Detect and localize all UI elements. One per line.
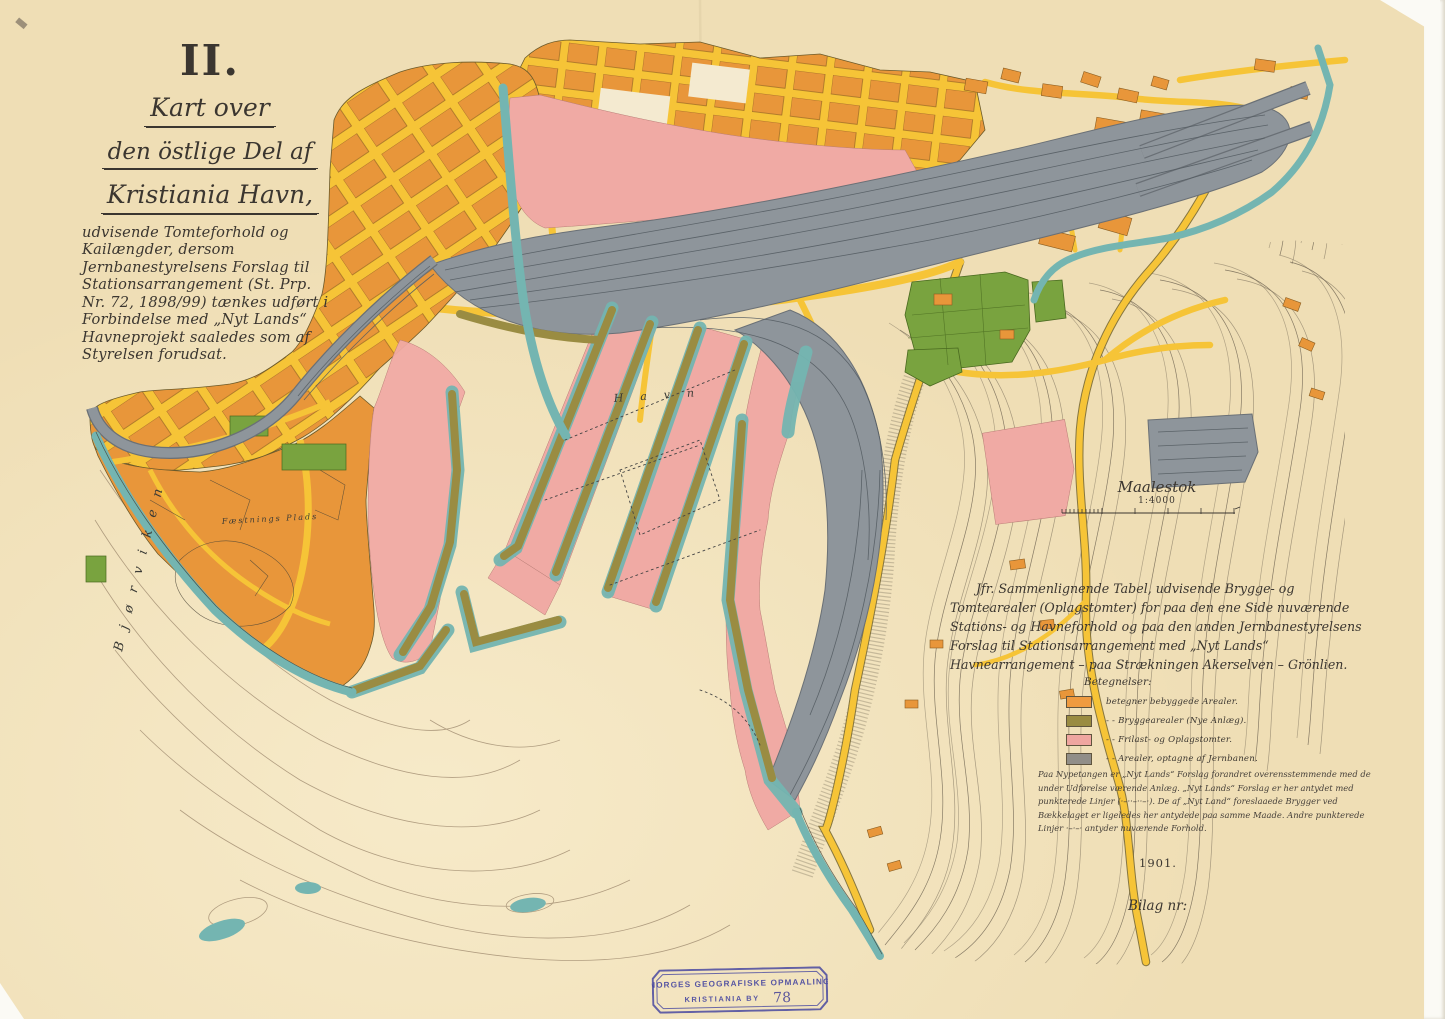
legend-row: betegner bebyggede Arealer. [1066, 696, 1366, 708]
attachment-label: Bilag nr: [1128, 898, 1248, 914]
map-sheet: Bjørviken Havn Fæstnings Plads II. Kart … [0, 0, 1445, 1019]
scale-block: Maalestok 1:4000 [1042, 478, 1272, 506]
title-block: II. Kart over den östlige Del af Kristia… [82, 40, 338, 364]
legend-swatch-storage [1066, 734, 1092, 746]
scale-ratio: 1:4000 [1042, 496, 1272, 506]
comparison-note: Jfr. Sammenlignende Tabel, udvisende Bry… [950, 580, 1362, 674]
title-line-2: den östlige Del af [82, 139, 338, 169]
year-label: 1901. [1098, 856, 1218, 870]
legend-swatch-railway [1066, 753, 1092, 765]
legend: Betegnelser: betegner bebyggede Arealer.… [1066, 676, 1366, 772]
legend-label: betegner bebyggede Arealer. [1106, 697, 1238, 707]
legend-swatch-built [1066, 696, 1092, 708]
legend-swatch-quay [1066, 715, 1092, 727]
title-line-3: Kristiania Havn, [82, 181, 338, 214]
stamp-line-2: KRISTIANIA BY [684, 994, 759, 1005]
stamp-number: 78 [773, 990, 791, 1006]
legend-label: - - Bryggearealer (Nye Anlæg). [1106, 716, 1246, 726]
legend-footnote: Paa Nypetangen er „Nyt Lands“ Forslag fo… [1038, 768, 1374, 836]
sheet-numeral: II. [82, 40, 338, 82]
title-line-1: Kart over [82, 94, 338, 127]
legend-label: - - Arealer, optagne af Jernbanen. [1106, 754, 1258, 764]
legend-heading: Betegnelser: [1084, 676, 1366, 688]
legend-row: - - Arealer, optagne af Jernbanen. [1066, 753, 1366, 765]
legend-row: - - Frilast- og Oplagstomter. [1066, 734, 1366, 746]
stamp-line-1: NORGES GEOGRAFISKE OPMAALING [652, 977, 829, 990]
scan-edge-right [1424, 0, 1445, 1019]
legend-label: - - Frilast- og Oplagstomter. [1106, 735, 1232, 745]
legend-row: - - Bryggearealer (Nye Anlæg). [1066, 715, 1366, 727]
scale-label: Maalestok [1042, 478, 1272, 496]
archive-stamp: NORGES GEOGRAFISKE OPMAALING KRISTIANIA … [652, 966, 829, 1018]
title-body: udvisende Tomteforhold og Kailængder, de… [82, 224, 338, 364]
